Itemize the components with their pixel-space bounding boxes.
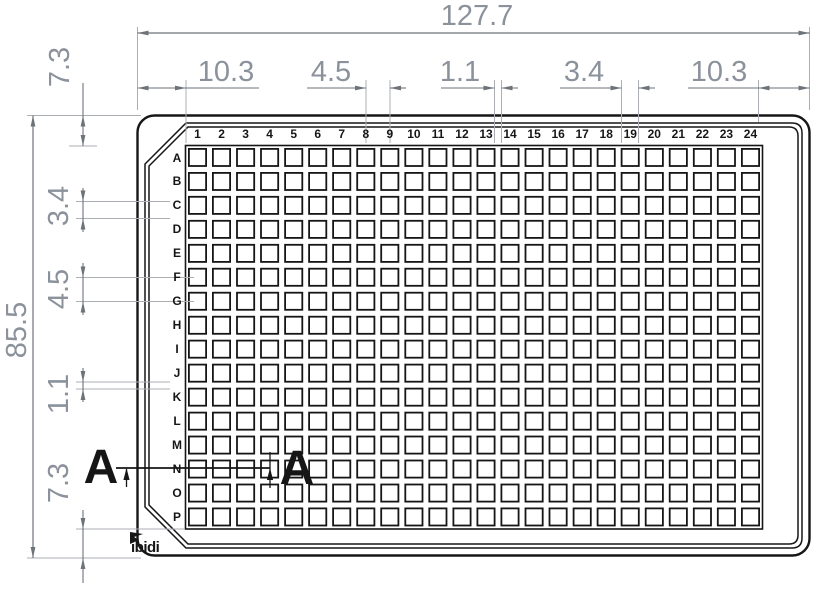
well: [285, 293, 302, 310]
well: [550, 413, 567, 430]
well: [477, 197, 494, 214]
dimension-arrow: [799, 31, 810, 36]
well: [333, 437, 350, 454]
well: [718, 389, 735, 406]
well: [213, 317, 230, 334]
well: [526, 269, 543, 286]
well: [477, 413, 494, 430]
well: [574, 293, 591, 310]
well: [574, 197, 591, 214]
well: [670, 221, 687, 238]
well: [333, 245, 350, 262]
well: [670, 341, 687, 358]
well: [501, 508, 518, 525]
dimension-arrow: [81, 389, 86, 400]
well: [357, 365, 374, 382]
well: [213, 437, 230, 454]
well: [742, 389, 759, 406]
well: [694, 485, 711, 502]
well: [405, 389, 422, 406]
well: [261, 173, 278, 190]
well: [333, 173, 350, 190]
well: [189, 485, 206, 502]
well: [526, 365, 543, 382]
well: [429, 461, 446, 478]
well: [405, 221, 422, 238]
well: [598, 341, 615, 358]
well: [453, 389, 470, 406]
well: [285, 269, 302, 286]
well: [622, 245, 639, 262]
well: [285, 461, 302, 478]
well: [742, 197, 759, 214]
well: [742, 245, 759, 262]
well: [357, 269, 374, 286]
well: [237, 149, 254, 166]
well: [333, 461, 350, 478]
well: [453, 269, 470, 286]
well: [646, 508, 663, 525]
well: [526, 173, 543, 190]
well: [285, 485, 302, 502]
dimension-arrow: [81, 267, 86, 278]
well: [189, 317, 206, 334]
well: [598, 173, 615, 190]
well: [477, 317, 494, 334]
well: [309, 461, 326, 478]
well: [429, 149, 446, 166]
well: [309, 149, 326, 166]
well: [477, 365, 494, 382]
well: [405, 197, 422, 214]
well: [550, 317, 567, 334]
well: [189, 341, 206, 358]
well: [453, 485, 470, 502]
well: [261, 293, 278, 310]
well: [261, 149, 278, 166]
well: [213, 173, 230, 190]
well: [333, 485, 350, 502]
well: [261, 365, 278, 382]
well: [742, 221, 759, 238]
well: [357, 437, 374, 454]
well: [574, 317, 591, 334]
well: [718, 437, 735, 454]
well: [550, 461, 567, 478]
well: [598, 149, 615, 166]
well: [309, 413, 326, 430]
well: [718, 269, 735, 286]
dimension-arrow: [81, 371, 86, 382]
well: [237, 173, 254, 190]
well: [501, 173, 518, 190]
well: [646, 245, 663, 262]
well: [381, 293, 398, 310]
well: [622, 149, 639, 166]
dimension-arrow: [81, 135, 86, 146]
dimension-arrow: [81, 219, 86, 230]
well: [189, 413, 206, 430]
well: [501, 293, 518, 310]
well: [598, 485, 615, 502]
well: [429, 341, 446, 358]
well: [694, 461, 711, 478]
well: [381, 485, 398, 502]
dimension-arrow: [81, 116, 86, 127]
well: [646, 197, 663, 214]
well: [285, 389, 302, 406]
well: [237, 461, 254, 478]
well: [501, 149, 518, 166]
well: [261, 389, 278, 406]
well: [189, 197, 206, 214]
well: [213, 245, 230, 262]
well: [429, 245, 446, 262]
well: [405, 413, 422, 430]
dimension-arrow: [639, 86, 650, 91]
well: [237, 245, 254, 262]
well: [742, 461, 759, 478]
well: [574, 245, 591, 262]
well: [670, 293, 687, 310]
well: [670, 269, 687, 286]
well: [357, 293, 374, 310]
well: [501, 365, 518, 382]
well: [453, 293, 470, 310]
well: [285, 317, 302, 334]
well: [237, 437, 254, 454]
well: [646, 173, 663, 190]
well: [429, 197, 446, 214]
well: [526, 245, 543, 262]
well: [189, 389, 206, 406]
well: [718, 508, 735, 525]
well: [381, 508, 398, 525]
well: [357, 413, 374, 430]
well: [453, 221, 470, 238]
well: [333, 293, 350, 310]
well: [646, 221, 663, 238]
well: [598, 269, 615, 286]
well: [670, 485, 687, 502]
well: [237, 269, 254, 286]
well: [189, 149, 206, 166]
well: [429, 485, 446, 502]
well: [646, 461, 663, 478]
well: [622, 485, 639, 502]
well: [333, 317, 350, 334]
well: [550, 293, 567, 310]
well: [333, 389, 350, 406]
well: [646, 413, 663, 430]
well: [670, 508, 687, 525]
well: [453, 245, 470, 262]
well: [718, 149, 735, 166]
well: [694, 365, 711, 382]
well: [213, 413, 230, 430]
well: [622, 508, 639, 525]
well: [237, 317, 254, 334]
well: [526, 317, 543, 334]
well: [261, 437, 278, 454]
well: [694, 245, 711, 262]
well: [357, 341, 374, 358]
well: [694, 173, 711, 190]
well: [237, 389, 254, 406]
well: [598, 317, 615, 334]
well: [501, 317, 518, 334]
well: [622, 173, 639, 190]
well: [405, 245, 422, 262]
well: [261, 317, 278, 334]
well: [477, 461, 494, 478]
well: [381, 221, 398, 238]
well: [333, 149, 350, 166]
well: [694, 317, 711, 334]
well: [526, 341, 543, 358]
well: [574, 173, 591, 190]
well: [237, 293, 254, 310]
well: [718, 245, 735, 262]
section-arrow-left: [123, 468, 129, 480]
well: [285, 508, 302, 525]
dimension-arrow: [81, 558, 86, 569]
well: [405, 365, 422, 382]
well: [526, 437, 543, 454]
well: [646, 389, 663, 406]
well: [357, 461, 374, 478]
well: [646, 365, 663, 382]
technical-drawing-canvas: 127.710.34.51.13.410.37.33.44.51.17.385.…: [0, 0, 817, 593]
dimension-arrow: [138, 86, 149, 91]
well: [526, 461, 543, 478]
well: [598, 197, 615, 214]
well: [742, 485, 759, 502]
well: [189, 508, 206, 525]
well: [598, 413, 615, 430]
well: [429, 221, 446, 238]
well: [309, 341, 326, 358]
well: [574, 413, 591, 430]
well: [646, 269, 663, 286]
well: [598, 437, 615, 454]
well: [309, 173, 326, 190]
well: [550, 173, 567, 190]
well: [333, 197, 350, 214]
well: [646, 293, 663, 310]
well: [261, 197, 278, 214]
well: [333, 341, 350, 358]
well: [333, 269, 350, 286]
well: [309, 221, 326, 238]
well: [237, 508, 254, 525]
well: [718, 197, 735, 214]
well: [622, 365, 639, 382]
well: [550, 269, 567, 286]
well: [237, 365, 254, 382]
well: [405, 508, 422, 525]
well: [309, 197, 326, 214]
well: [237, 221, 254, 238]
well: [477, 149, 494, 166]
well: [574, 221, 591, 238]
well: [622, 437, 639, 454]
well: [694, 269, 711, 286]
well: [718, 485, 735, 502]
well: [309, 269, 326, 286]
well: [237, 485, 254, 502]
well: [453, 508, 470, 525]
well: [285, 341, 302, 358]
well: [453, 149, 470, 166]
well: [405, 341, 422, 358]
well: [429, 508, 446, 525]
dimension-arrow: [484, 86, 495, 91]
well: [742, 269, 759, 286]
well: [309, 389, 326, 406]
well: [429, 317, 446, 334]
well: [405, 269, 422, 286]
plate-drawing-svg: [0, 0, 817, 593]
well: [333, 413, 350, 430]
well: [598, 461, 615, 478]
well: [742, 173, 759, 190]
well: [453, 365, 470, 382]
well: [285, 173, 302, 190]
well: [670, 437, 687, 454]
well: [670, 173, 687, 190]
well: [405, 437, 422, 454]
well: [526, 293, 543, 310]
well: [357, 221, 374, 238]
well: [574, 389, 591, 406]
well: [501, 341, 518, 358]
well: [550, 508, 567, 525]
well: [598, 365, 615, 382]
well: [501, 245, 518, 262]
well: [261, 245, 278, 262]
well: [670, 149, 687, 166]
well: [694, 293, 711, 310]
well: [309, 485, 326, 502]
well: [357, 245, 374, 262]
well: [213, 149, 230, 166]
well: [213, 221, 230, 238]
well: [213, 461, 230, 478]
well: [501, 485, 518, 502]
dimension-arrow: [138, 31, 149, 36]
well: [285, 245, 302, 262]
well: [670, 317, 687, 334]
well: [598, 221, 615, 238]
well: [189, 221, 206, 238]
well: [333, 508, 350, 525]
dimension-arrow: [390, 86, 401, 91]
well: [381, 245, 398, 262]
well: [309, 293, 326, 310]
well: [261, 413, 278, 430]
well: [670, 389, 687, 406]
well: [285, 197, 302, 214]
well: [381, 341, 398, 358]
well: [381, 389, 398, 406]
well: [213, 389, 230, 406]
well: [213, 197, 230, 214]
well: [598, 508, 615, 525]
well: [501, 437, 518, 454]
well: [718, 221, 735, 238]
well: [189, 173, 206, 190]
dimension-arrow: [175, 86, 186, 91]
well: [381, 413, 398, 430]
well: [261, 341, 278, 358]
well: [622, 197, 639, 214]
well: [357, 317, 374, 334]
well: [574, 461, 591, 478]
well: [742, 508, 759, 525]
well: [477, 221, 494, 238]
well: [453, 341, 470, 358]
well: [526, 221, 543, 238]
well: [646, 485, 663, 502]
well: [550, 149, 567, 166]
well: [526, 508, 543, 525]
well: [550, 437, 567, 454]
well: [526, 149, 543, 166]
well: [333, 365, 350, 382]
well: [189, 437, 206, 454]
well: [429, 269, 446, 286]
well: [526, 197, 543, 214]
well: [670, 365, 687, 382]
well: [550, 365, 567, 382]
well: [694, 389, 711, 406]
well: [501, 197, 518, 214]
dimension-arrow: [31, 547, 36, 558]
well: [742, 413, 759, 430]
well: [213, 508, 230, 525]
well: [550, 245, 567, 262]
well: [670, 413, 687, 430]
well: [189, 461, 206, 478]
well: [309, 508, 326, 525]
well: [526, 389, 543, 406]
well: [742, 149, 759, 166]
well: [526, 485, 543, 502]
dimension-arrow: [81, 518, 86, 529]
well: [405, 485, 422, 502]
well: [670, 461, 687, 478]
well: [574, 149, 591, 166]
well: [622, 389, 639, 406]
well: [718, 365, 735, 382]
well: [405, 461, 422, 478]
well: [742, 365, 759, 382]
well: [213, 365, 230, 382]
dimension-arrow: [81, 191, 86, 202]
well: [622, 293, 639, 310]
well: [429, 293, 446, 310]
well: [694, 149, 711, 166]
well: [309, 365, 326, 382]
well: [574, 437, 591, 454]
well: [646, 317, 663, 334]
well: [477, 508, 494, 525]
well: [429, 437, 446, 454]
well: [718, 293, 735, 310]
dimension-arrow: [799, 86, 810, 91]
well: [477, 437, 494, 454]
